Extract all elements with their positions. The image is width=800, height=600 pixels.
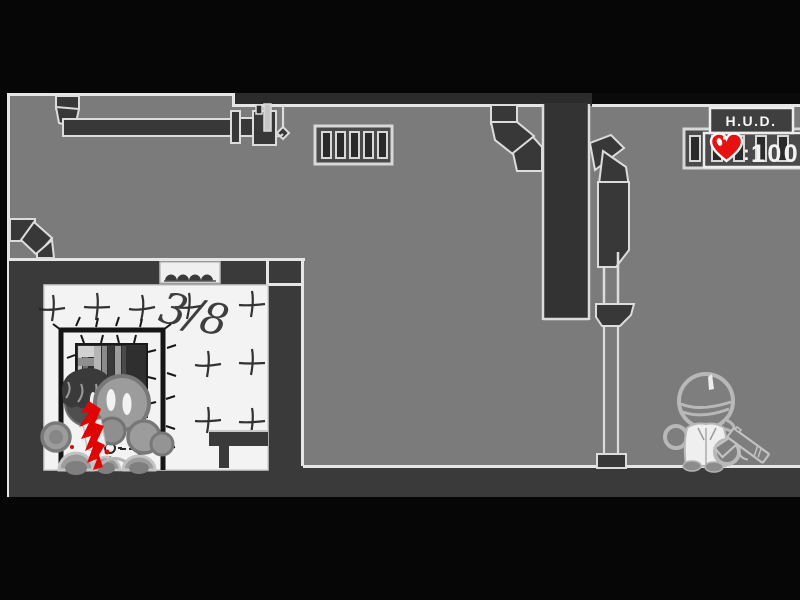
hud-health-value: 100 [751,140,800,168]
wall-vent-middle [315,126,392,164]
hud-title: H.U.D. [726,113,777,129]
central-column [542,103,590,320]
arched-vent [160,262,220,283]
game-stage[interactable]: 3/8 [0,0,800,600]
hud-separator: : [743,143,750,165]
room-structure [7,258,305,497]
